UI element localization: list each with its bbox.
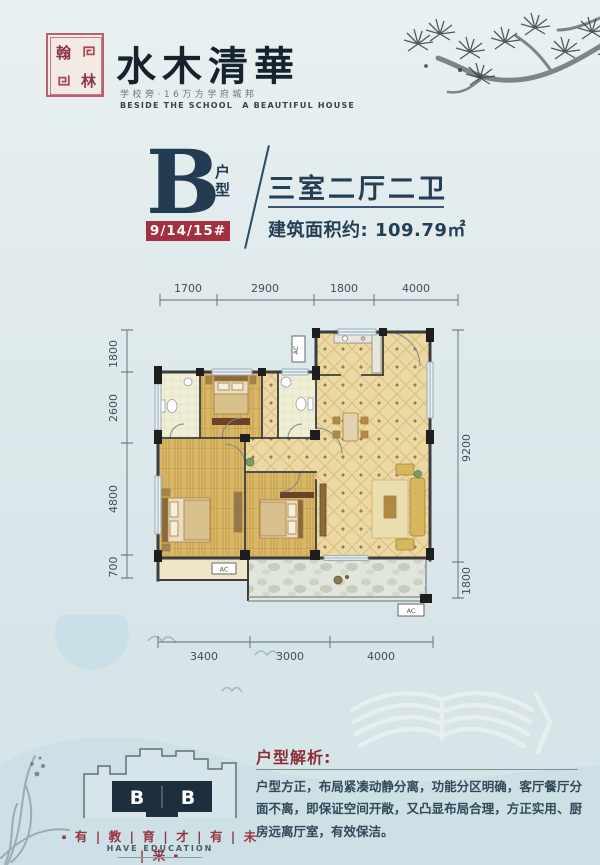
unit-letter: B — [146, 138, 220, 226]
seal-spiral-icon — [76, 38, 101, 66]
slogan-left-bullet: ▪ — [62, 833, 69, 841]
ac-label-bottom: AC — [407, 607, 416, 615]
slogan-underline — [118, 857, 202, 858]
pine-branch-art — [320, 0, 600, 128]
dim-right-1: 9200 — [460, 434, 473, 462]
unit-area-text: 建筑面积约: 109.79㎡ — [268, 216, 466, 242]
tower-diagram: B B — [76, 744, 244, 822]
brand-subtitle-cn: 学校旁·16万方学府城邦 — [120, 87, 257, 100]
dim-right-2: 1800 — [460, 567, 473, 595]
analysis-heading: 户型解析: — [256, 744, 331, 768]
brand-subtitle-en: BESIDE THE SCHOOL A BEAUTIFUL HOUSE — [120, 100, 355, 111]
building-number-badge: 9/14/15# — [146, 221, 230, 241]
dim-top-4: 4000 — [402, 282, 430, 295]
dim-top-1: 1700 — [174, 282, 202, 295]
brand-seal: 翰 林 — [46, 33, 104, 97]
education-slogan-en: HAVE EDUCATION — [60, 844, 260, 853]
unit-type-label: 户型 — [212, 164, 233, 200]
dim-left-3: 4800 — [107, 485, 120, 513]
dim-bottom-3: 4000 — [367, 650, 395, 663]
brand-seal-grid: 翰 林 — [50, 37, 102, 95]
dim-bottom-1: 3400 — [190, 650, 218, 663]
analysis-divider — [256, 769, 578, 770]
floorplan: 1700 2900 1800 4000 1800 2600 4800 700 9… — [100, 268, 500, 693]
divider-slash — [244, 145, 270, 249]
seal-char-han: 翰 — [51, 38, 76, 66]
ac-label-left: AC — [220, 566, 229, 574]
dim-left-1: 1800 — [107, 340, 120, 368]
ac-label-top: AC — [292, 345, 300, 354]
layout-underline — [268, 206, 444, 208]
dim-left-2: 2600 — [107, 394, 120, 422]
analysis-body: 户型方正，布局紧凑动静分离，功能分区明确，客厅餐厅分面不离，即保证空间开敞，又凸… — [256, 776, 582, 843]
dim-bottom-2: 3000 — [276, 650, 304, 663]
slogan-right-bullet: ▪ — [174, 852, 181, 860]
pine-needles — [404, 13, 600, 85]
dim-top-3: 1800 — [330, 282, 358, 295]
tower-label-right: B — [181, 787, 195, 809]
unit-layout-text: 三室二厅二卫 — [268, 167, 448, 206]
dim-top-2: 2900 — [251, 282, 279, 295]
dim-left-4: 700 — [107, 557, 120, 578]
seal-spiral-icon — [51, 66, 76, 94]
tower-label-left: B — [130, 787, 144, 809]
brand-title: 水木清華 — [116, 34, 300, 92]
seal-char-lin: 林 — [76, 66, 101, 94]
poster: 翰 林 水木清華 学校旁·16万方学府城邦 BESIDE THE SCHOOL … — [0, 0, 600, 865]
